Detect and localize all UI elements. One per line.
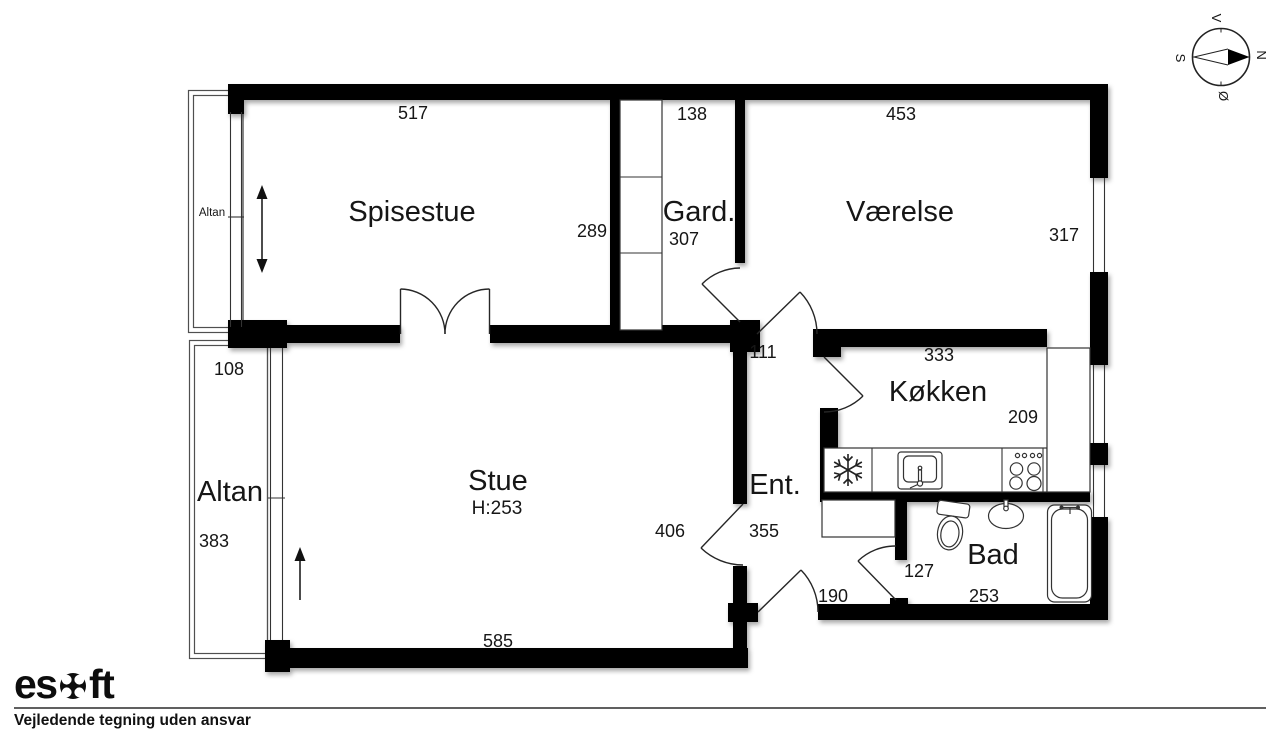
stue-arrow — [295, 547, 306, 600]
door-koekken — [824, 357, 863, 412]
measurement-koekken-width: 333 — [924, 345, 954, 365]
compass-needle-tail — [1194, 49, 1228, 65]
room-label-altan-bottom: Altan — [197, 476, 263, 508]
wall-spisestue-gard — [610, 98, 620, 332]
compass-west: V — [1209, 14, 1224, 23]
wall-east-3 — [1090, 443, 1108, 465]
wall-ent-west-upper — [733, 343, 747, 504]
door-vaerelse — [757, 292, 817, 334]
wall-east-1 — [1090, 84, 1108, 178]
wall-mid-left — [284, 325, 400, 343]
room-label-stue: Stue — [468, 465, 528, 497]
kitchen-counter — [824, 348, 1090, 492]
floorplan-page: Spisestue Gard. Værelse Køkken Stue H:25… — [0, 0, 1280, 733]
floorplan-drawing: Spisestue Gard. Værelse Køkken Stue H:25… — [0, 0, 1280, 733]
measurement-koekken-depth: 209 — [1008, 407, 1038, 427]
door-bad — [858, 546, 896, 600]
compass-rose: V N S Ø — [1173, 14, 1269, 101]
door-gard — [702, 268, 740, 322]
bathroom-sink — [989, 500, 1024, 529]
compass-north: N — [1254, 50, 1269, 59]
window-koekken-east — [1094, 365, 1105, 443]
measurement-altan-depth: 383 — [199, 531, 229, 551]
measurement-ent-depth: 355 — [749, 521, 779, 541]
compass-needle-icon — [1228, 49, 1250, 65]
measurement-front-door: 190 — [818, 586, 848, 606]
room-label-spisestue: Spisestue — [348, 196, 475, 228]
wall-frontdoor-block — [728, 603, 758, 622]
wall-east-2 — [1090, 272, 1108, 365]
fixtures — [620, 100, 1092, 602]
wall-south-stue — [265, 648, 748, 668]
arrows — [257, 185, 306, 600]
wall-bad-west — [895, 502, 907, 560]
room-label-vaerelse: Værelse — [846, 196, 954, 228]
spisestue-arrow — [257, 185, 268, 273]
wall-corner-sw-stue — [265, 640, 290, 672]
window-bad-east — [1094, 465, 1105, 517]
wall-west-stub — [228, 98, 244, 114]
kitchen-sink — [898, 452, 942, 489]
measurement-spisestue-width: 517 — [398, 103, 428, 123]
measurement-spisestue-depth: 289 — [577, 221, 607, 241]
measurement-stue-width: 585 — [483, 631, 513, 651]
wall-corner-sw-spisestue — [228, 320, 287, 348]
disclaimer-text: Vejledende tegning uden ansvar — [14, 712, 251, 729]
door-entrance — [758, 570, 818, 612]
room-label-gard: Gard. — [663, 196, 736, 228]
hall-closet — [822, 500, 895, 537]
brand-logo-prefix: es — [14, 661, 57, 707]
measurement-bad-width: 253 — [969, 586, 999, 606]
brand-logo-suffix: ft — [89, 661, 115, 707]
measurement-bad-depth: 127 — [904, 561, 934, 581]
brand-gear-icon — [60, 673, 86, 699]
wall-south-right — [818, 604, 1106, 620]
room-label-ent: Ent. — [749, 469, 801, 501]
compass-south: S — [1173, 54, 1188, 63]
window-spisestue-west — [228, 112, 244, 327]
room-label-altan-top: Altan — [199, 207, 225, 219]
door-spisestue-double — [401, 289, 490, 334]
compass-east: Ø — [1216, 91, 1231, 101]
measurement-gard-depth: 307 — [669, 229, 699, 249]
footer: es ft Vejledende tegning uden ansvar — [14, 661, 1266, 729]
measurement-hall-opening: 111 — [749, 342, 776, 362]
door-stue-ent — [701, 504, 743, 565]
wall-gard-vaerelse — [735, 98, 745, 263]
measurement-vaerelse-width: 453 — [886, 104, 916, 124]
measurement-altan-width: 108 — [214, 359, 244, 379]
wall-north — [228, 84, 1108, 100]
ceiling-height-stue: H:253 — [472, 498, 523, 519]
room-label-bad: Bad — [967, 539, 1019, 571]
measurement-stue-depth: 406 — [655, 521, 685, 541]
measurement-vaerelse-depth: 317 — [1049, 225, 1079, 245]
room-label-koekken: Køkken — [889, 376, 987, 408]
measurement-gard-width: 138 — [677, 104, 707, 124]
bathtub — [1048, 505, 1092, 602]
window-vaerelse-east — [1094, 178, 1105, 272]
kitchen-counter-column — [1047, 348, 1090, 492]
wardrobe-shelves — [620, 100, 662, 330]
window-stue-west — [268, 348, 285, 640]
toilet — [932, 500, 970, 552]
